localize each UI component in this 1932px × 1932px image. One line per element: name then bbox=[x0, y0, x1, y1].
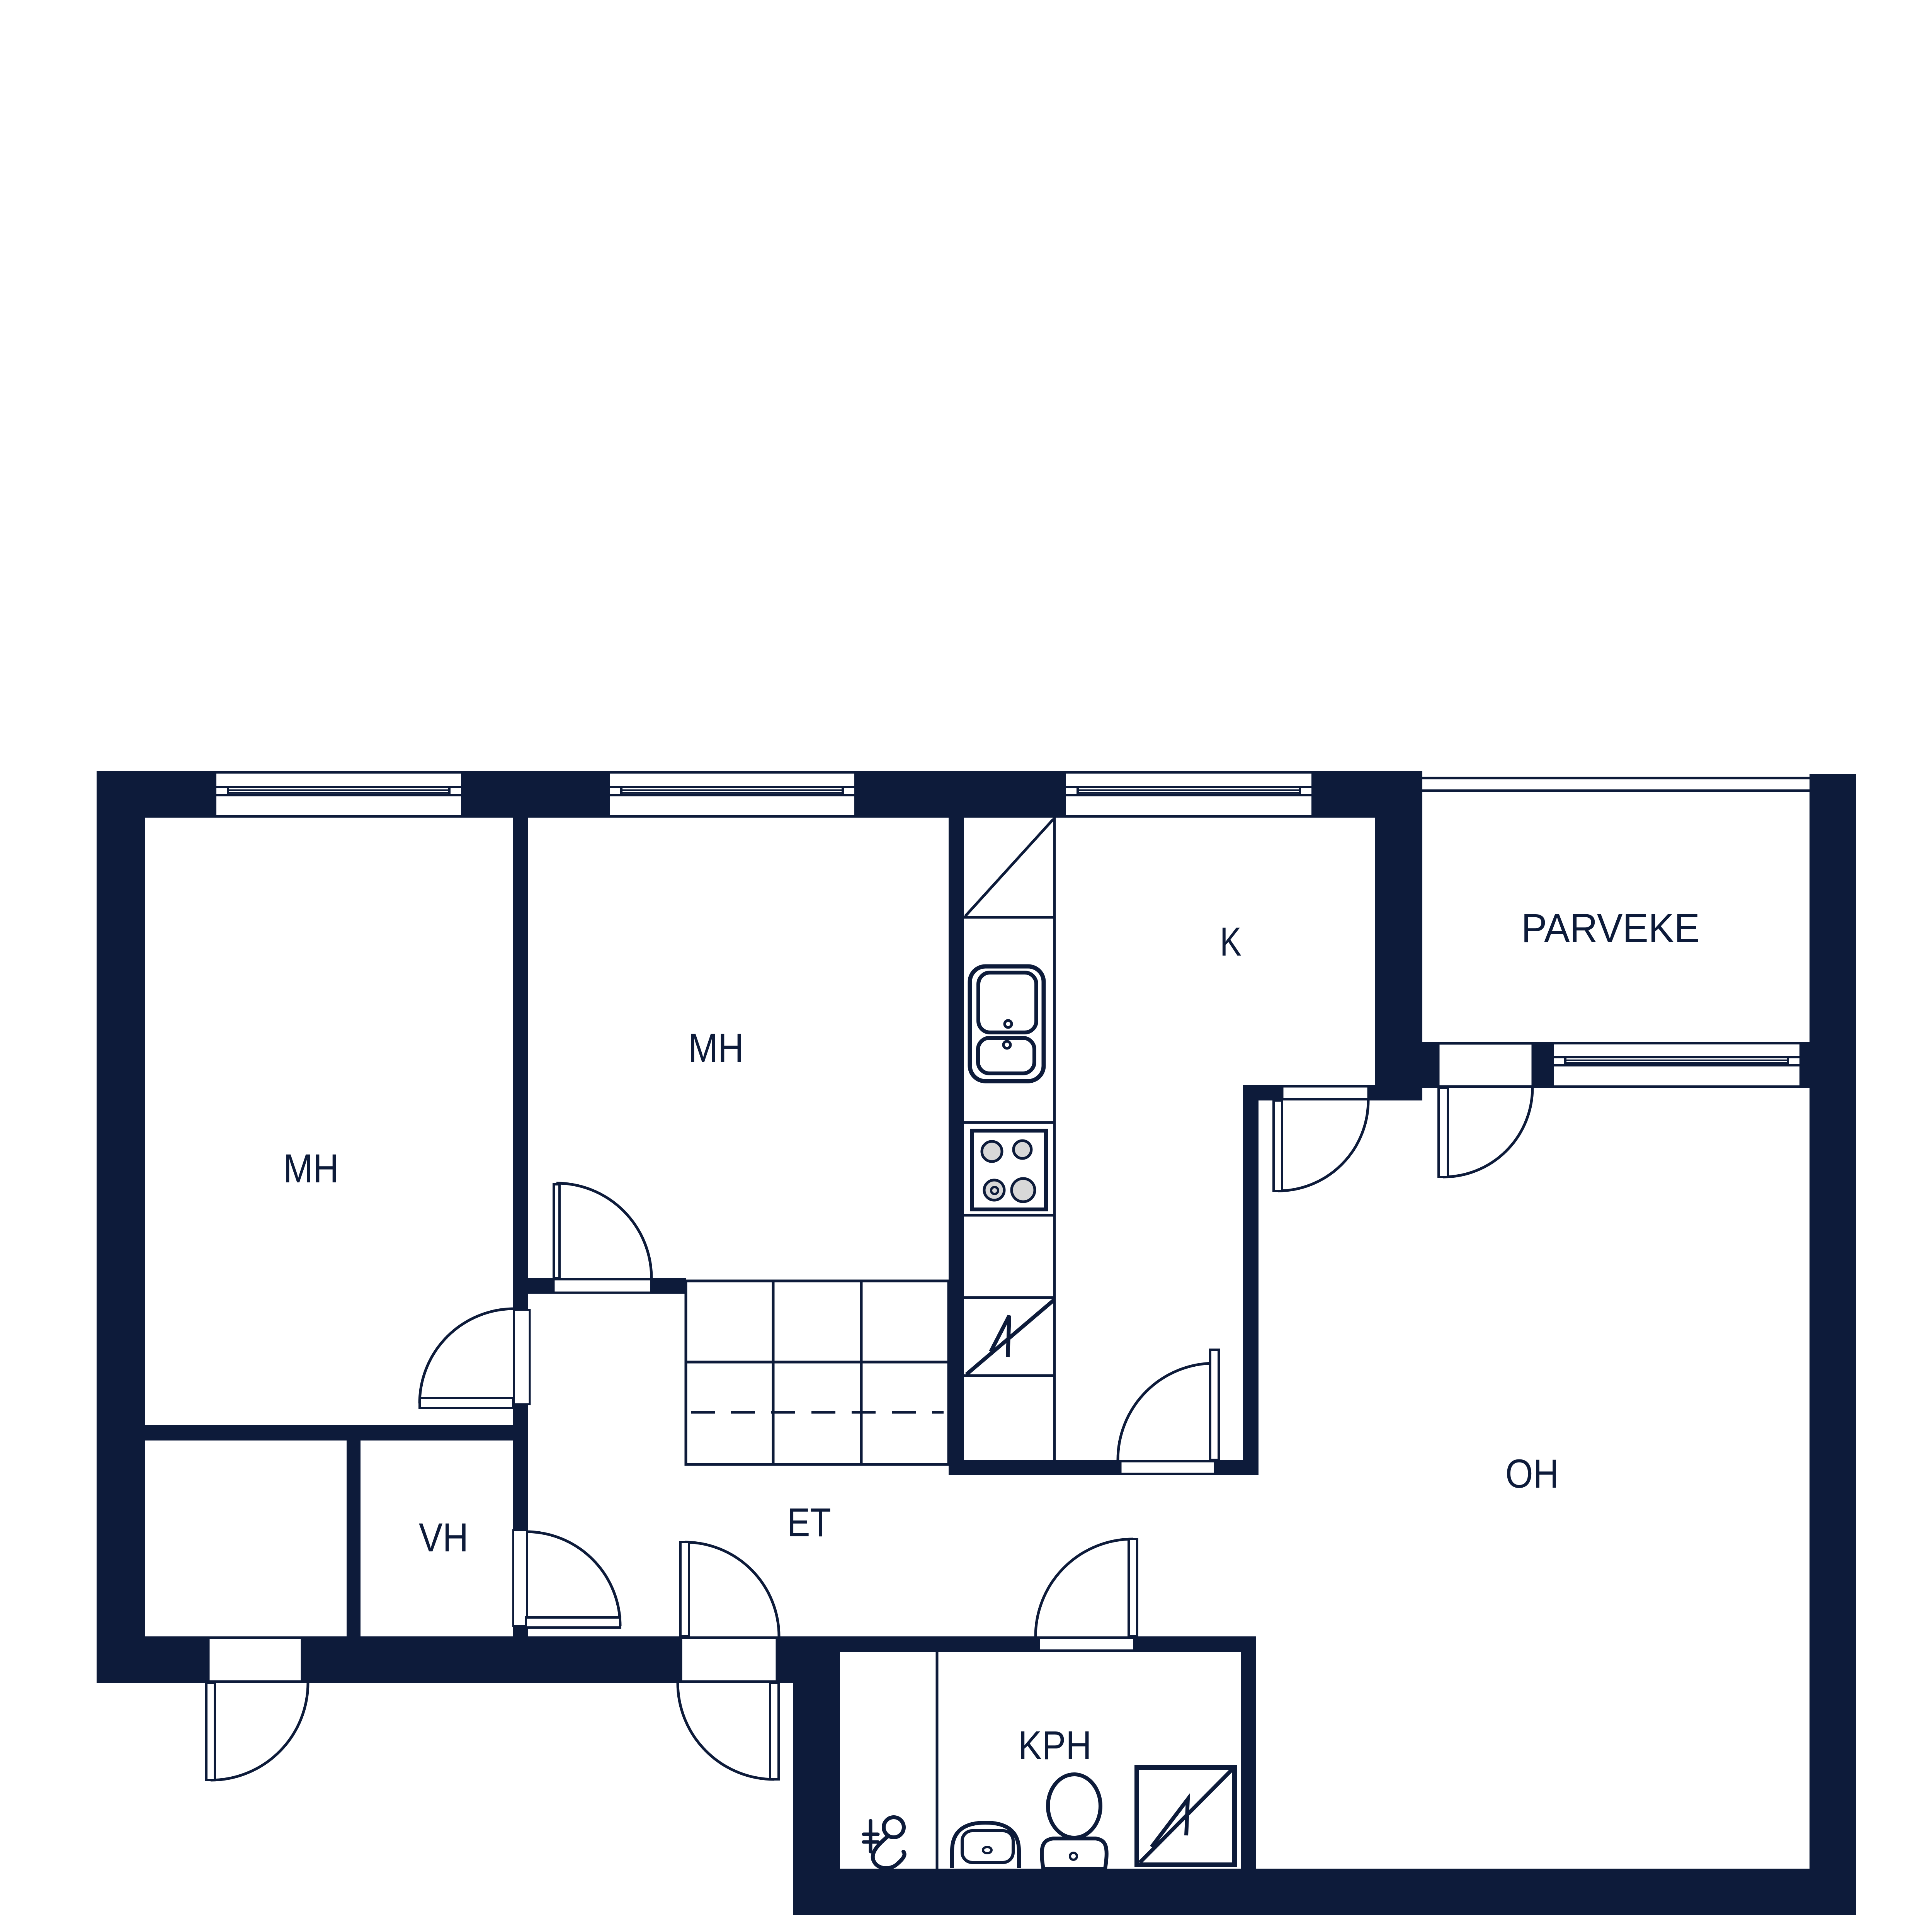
svg-text:PARVEKE: PARVEKE bbox=[1521, 905, 1700, 951]
svg-text:K: K bbox=[1220, 919, 1242, 964]
svg-text:MH: MH bbox=[688, 1025, 744, 1070]
svg-text:MH: MH bbox=[283, 1145, 339, 1191]
svg-text:OH: OH bbox=[1505, 1451, 1559, 1496]
svg-text:VH: VH bbox=[419, 1514, 468, 1560]
svg-text:ET: ET bbox=[787, 1500, 831, 1545]
svg-text:KPH: KPH bbox=[1018, 1722, 1092, 1768]
